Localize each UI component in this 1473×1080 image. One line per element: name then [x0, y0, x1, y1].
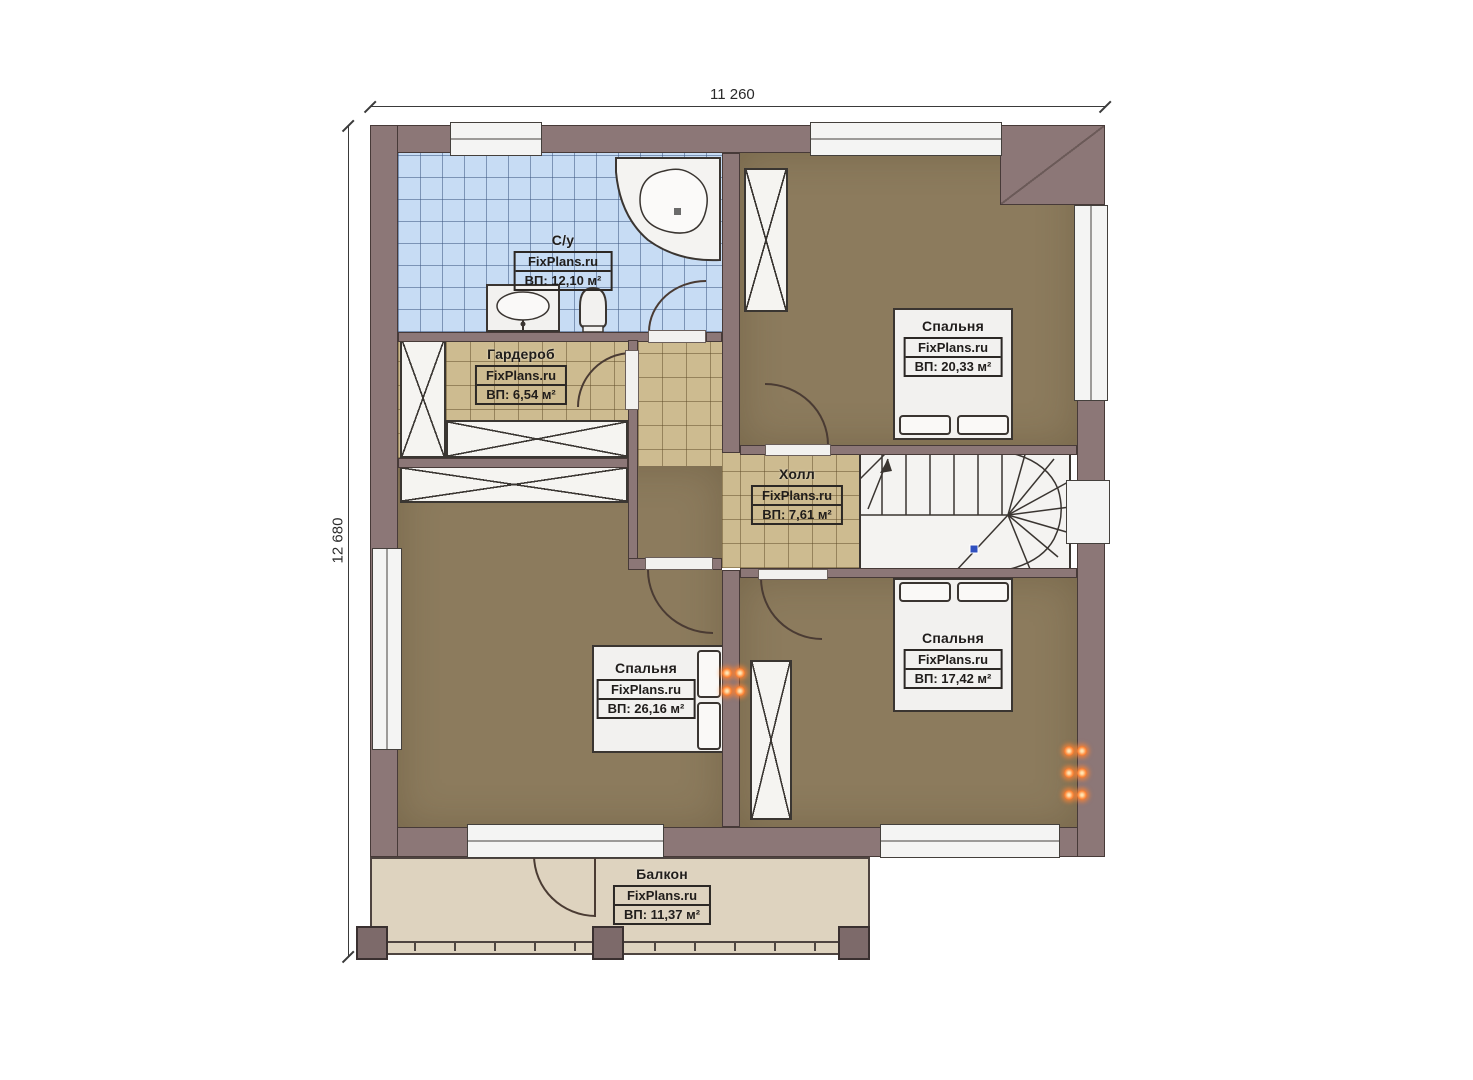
- room-area: ВП: 20,33 м²: [906, 356, 1001, 375]
- door-leaf: [594, 855, 596, 917]
- dimension-label-height: 12 680: [329, 518, 346, 564]
- room-title: Холл: [751, 466, 843, 482]
- stair-exit-opening: [1066, 480, 1110, 544]
- dimension-label-width: 11 260: [710, 86, 755, 103]
- power-socket-icon: [722, 668, 745, 678]
- room-label-box: FixPlans.ru ВП: 11,37 м²: [613, 885, 711, 925]
- wall-corner-pier: [1000, 125, 1105, 205]
- room-label-bathroom: С/у FixPlans.ru ВП: 12,10 м²: [514, 232, 613, 291]
- room-area: ВП: 17,42 м²: [906, 668, 1001, 687]
- wall-divider-lower: [722, 570, 740, 827]
- door-threshold: [625, 350, 639, 410]
- room-label-box: FixPlans.ru ВП: 6,54 м²: [475, 365, 567, 405]
- hall-gap-floor: [722, 453, 740, 568]
- room-label-box: FixPlans.ru ВП: 7,61 м²: [751, 485, 843, 525]
- room-title: С/у: [514, 232, 613, 248]
- wall-wardrobe-south: [398, 458, 628, 468]
- closet-hatch: [400, 338, 446, 458]
- dimension-line-top: [370, 106, 1105, 107]
- room-brand: FixPlans.ru: [516, 253, 611, 270]
- room-brand: FixPlans.ru: [753, 487, 841, 504]
- door-threshold: [645, 557, 713, 570]
- room-label-box: FixPlans.ru ВП: 17,42 м²: [904, 649, 1003, 689]
- window: [372, 548, 402, 750]
- room-label-box: FixPlans.ru ВП: 26,16 м²: [597, 679, 696, 719]
- room-label-balcony: Балкон FixPlans.ru ВП: 11,37 м²: [613, 866, 711, 925]
- room-label-box: FixPlans.ru ВП: 20,33 м²: [904, 337, 1003, 377]
- room-brand: FixPlans.ru: [906, 339, 1001, 356]
- room-brand: FixPlans.ru: [615, 887, 709, 904]
- room-area: ВП: 6,54 м²: [477, 384, 565, 403]
- room-title: Спальня: [904, 318, 1003, 334]
- room-title: Спальня: [597, 660, 696, 676]
- corner-bathtub: [614, 156, 722, 268]
- room-area: ВП: 7,61 м²: [753, 504, 841, 523]
- power-socket-icon: [1064, 768, 1087, 778]
- room-area: ВП: 26,16 м²: [599, 698, 694, 717]
- closet-hatch: [750, 660, 792, 820]
- room-brand: FixPlans.ru: [906, 651, 1001, 668]
- room-label-bedroom-bottom-right: Спальня FixPlans.ru ВП: 17,42 м²: [904, 630, 1003, 689]
- wall-bathroom-south-a: [398, 332, 650, 342]
- door-threshold: [758, 569, 828, 580]
- room-brand: FixPlans.ru: [599, 681, 694, 698]
- closet-hatch: [744, 168, 788, 312]
- power-socket-icon: [1064, 790, 1087, 800]
- power-socket-icon: [722, 686, 745, 696]
- room-area: ВП: 12,10 м²: [516, 270, 611, 289]
- room-brand: FixPlans.ru: [477, 367, 565, 384]
- window-balcony-band: [467, 824, 664, 858]
- wall-bathroom-south-b: [706, 332, 722, 342]
- door-threshold: [765, 444, 831, 456]
- room-label-hall: Холл FixPlans.ru ВП: 7,61 м²: [751, 466, 843, 525]
- room-label-bedroom-bottom-left: Спальня FixPlans.ru ВП: 26,16 м²: [597, 660, 696, 719]
- dimension-line-left: [348, 125, 349, 957]
- closet-hatch: [446, 420, 628, 458]
- bed-pillow: [899, 415, 951, 435]
- room-label-box: FixPlans.ru ВП: 12,10 м²: [514, 251, 613, 291]
- room-title: Спальня: [904, 630, 1003, 646]
- window: [1074, 205, 1108, 401]
- bed-pillow: [957, 582, 1009, 602]
- wall-divider-upper: [722, 153, 740, 453]
- sink: [486, 284, 560, 334]
- balcony-post: [592, 926, 624, 960]
- room-title: Балкон: [613, 866, 711, 882]
- floor-plan: 11 260 12 680: [0, 0, 1473, 1080]
- bed-pillow: [899, 582, 951, 602]
- balcony-post: [838, 926, 870, 960]
- window: [450, 122, 542, 156]
- bed-pillow: [697, 650, 721, 698]
- staircase: [858, 445, 1077, 576]
- toilet: [570, 284, 616, 334]
- bed-pillow: [697, 702, 721, 750]
- window: [810, 122, 1002, 156]
- power-socket-icon: [1064, 746, 1087, 756]
- closet-hatch: [400, 466, 628, 503]
- room-area: ВП: 11,37 м²: [615, 904, 709, 923]
- door-threshold: [648, 330, 706, 343]
- window: [880, 824, 1060, 858]
- room-label-bedroom-top-right: Спальня FixPlans.ru ВП: 20,33 м²: [904, 318, 1003, 377]
- balcony-post: [356, 926, 388, 960]
- room-label-wardrobe: Гардероб FixPlans.ru ВП: 6,54 м²: [475, 346, 567, 405]
- bed-pillow: [957, 415, 1009, 435]
- room-title: Гардероб: [475, 346, 567, 362]
